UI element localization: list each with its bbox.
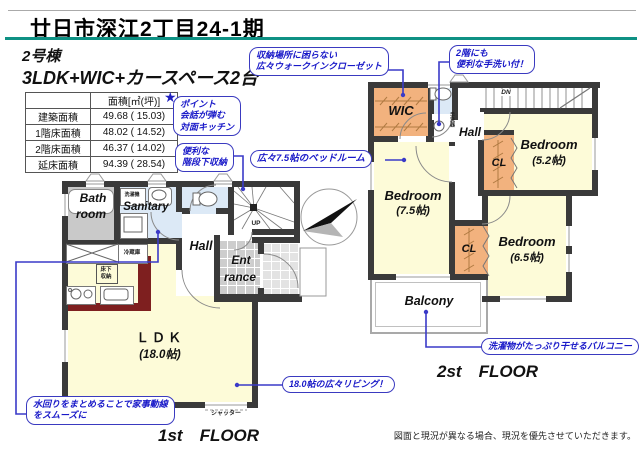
label-ldk: ＬＤＫ xyxy=(118,331,202,345)
label-entrance: rance xyxy=(216,271,264,284)
door-opening xyxy=(458,108,480,114)
label-underfloor: 収納 xyxy=(96,274,116,280)
wall xyxy=(182,208,190,214)
top-divider xyxy=(8,10,636,11)
label-balcony: Balcony xyxy=(396,295,462,309)
row-value: 94.39 ( 28.54) xyxy=(91,157,178,173)
label-cl-52: CL xyxy=(486,157,512,169)
callout-kitchen-point: ポイント 会話が弾む 対面キッチン xyxy=(173,96,241,136)
window xyxy=(214,181,232,187)
window-shutter xyxy=(205,402,247,408)
window xyxy=(62,330,68,362)
label-bedroom-75: Bedroom xyxy=(374,189,452,203)
table-row: 2階床面積 46.37 ( 14.02) xyxy=(26,141,178,157)
kitchen-sink xyxy=(100,286,134,305)
window xyxy=(566,226,572,246)
callout-bedroom75: 広々7.5帖のベッドルーム xyxy=(250,150,372,168)
row-label: 1階床面積 xyxy=(26,125,91,141)
window xyxy=(592,138,598,170)
caption-1st-floor: 1st FLOOR xyxy=(158,421,259,446)
callout-line: 広々ウォークインクローゼット xyxy=(256,61,382,72)
disclaimer-text: 図面と現況が異なる場合、現況を優先させていただきます。 xyxy=(394,429,636,442)
callout-line: 便利な手洗い付！ xyxy=(456,59,528,70)
wall xyxy=(258,240,264,254)
label-bath: room xyxy=(68,208,114,221)
floorplan-flyer: 廿日市深江2丁目24-1期 2号棟 3LDK+WIC+カースペース2台 面積[㎡… xyxy=(0,0,640,453)
area-table: 面積[㎡(坪)] 建築面積 49.68 ( 15.03) 1階床面積 48.02… xyxy=(25,92,178,173)
label-hall-1f: Hall xyxy=(180,240,222,254)
layout-summary: 3LDK+WIC+カースペース2台 xyxy=(22,64,258,90)
window xyxy=(500,296,546,302)
wall xyxy=(428,82,434,142)
room-ldk xyxy=(62,244,176,404)
table-row: 1階床面積 48.02 ( 14.52) xyxy=(26,125,178,141)
row-value: 46.37 ( 14.02) xyxy=(91,141,178,157)
north-arrow xyxy=(301,189,357,245)
table-row: 延床面積 94.39 ( 28.54) xyxy=(26,157,178,173)
callout-water: 水回りをまとめることで家事動線 をスムーズに xyxy=(26,396,175,425)
door-opening xyxy=(398,136,426,142)
window xyxy=(428,82,450,88)
label-bedroom-52-size: (5.2帖) xyxy=(510,155,588,167)
wall xyxy=(258,288,264,300)
window xyxy=(566,254,572,272)
label-handwash-basin: 手洗器 xyxy=(446,112,454,127)
callout-balcony: 洗濯物がたっぷり干せるバルコニー xyxy=(481,338,639,355)
label-ldk-size: (18.0帖) xyxy=(118,349,202,362)
label-entrance: Ent xyxy=(220,254,262,267)
label-bedroom-75-size: (7.5帖) xyxy=(374,205,452,217)
wall xyxy=(484,130,514,135)
label-hall-2f: Hall xyxy=(452,126,488,139)
balcony-door xyxy=(396,274,450,280)
wall xyxy=(484,190,598,196)
vanity-cabinet xyxy=(120,213,148,239)
callout-handwash: 2階にも 便利な手洗い付！ xyxy=(449,45,535,74)
row-value: 49.68 ( 15.03) xyxy=(91,109,178,125)
row-label: 延床面積 xyxy=(26,157,91,173)
callout-line: 便利な xyxy=(182,146,227,157)
window xyxy=(368,162,374,190)
table-row: 建築面積 49.68 ( 15.03) xyxy=(26,109,178,125)
wall xyxy=(482,196,488,222)
label-shutter: シャッター xyxy=(205,411,247,418)
wall xyxy=(452,274,488,280)
callout-line: ポイント xyxy=(180,99,234,110)
row-label: 2階床面積 xyxy=(26,141,91,157)
label-dn: DN xyxy=(497,89,515,96)
callout-line: 対面キッチン xyxy=(180,122,234,133)
table-row: 面積[㎡(坪)] xyxy=(26,93,178,109)
wall xyxy=(368,82,600,88)
label-bedroom-65-size: (6.5帖) xyxy=(490,252,564,264)
star-icon: ★ xyxy=(164,89,177,106)
callout-wic: 収納場所に困らない 広々ウォークインクローゼット xyxy=(249,47,389,76)
building-number: 2号棟 xyxy=(22,45,60,66)
label-bedroom-52: Bedroom xyxy=(510,138,588,152)
callout-line: 収納場所に困らない xyxy=(256,50,382,61)
door-opening xyxy=(449,146,455,182)
window xyxy=(148,181,166,187)
area-header-blank xyxy=(26,93,91,109)
callout-line: 階段下収納 xyxy=(182,157,227,168)
label-cl-65: CL xyxy=(456,243,482,255)
callout-line: 水回りをまとめることで家事動線 xyxy=(33,399,168,410)
kitchen-cupboard xyxy=(66,244,120,264)
label-washer: 洗濯機 xyxy=(120,193,144,199)
caption-2nd-floor: 2st FLOOR xyxy=(437,357,538,382)
callout-line: をスムーズに xyxy=(33,410,168,421)
wall xyxy=(252,298,258,408)
row-value: 48.02 ( 14.52) xyxy=(91,125,178,141)
title-underline xyxy=(5,37,637,40)
callout-line: 2階にも xyxy=(456,48,528,59)
callout-stair-storage: 便利な 階段下収納 xyxy=(175,143,234,172)
label-bedroom-65: Bedroom xyxy=(490,235,564,249)
wall xyxy=(252,229,296,235)
wall xyxy=(566,190,572,302)
stove xyxy=(66,286,96,305)
window xyxy=(86,181,104,187)
label-sanitary: Sanitary xyxy=(110,201,182,214)
callout-living: 18.0帖の広々リビング！ xyxy=(282,376,395,393)
label-fridge: 冷蔵庫 xyxy=(118,250,146,256)
porch-tiles xyxy=(262,243,298,294)
label-underfloor: 床下 xyxy=(96,267,116,273)
wall xyxy=(216,208,228,214)
entrance-tiles xyxy=(218,240,260,296)
callout-line: 会話が弾む xyxy=(180,110,234,121)
label-wic: WIC xyxy=(378,104,424,118)
label-up: UP xyxy=(246,220,266,227)
row-label: 建築面積 xyxy=(26,109,91,125)
wall xyxy=(228,181,234,235)
